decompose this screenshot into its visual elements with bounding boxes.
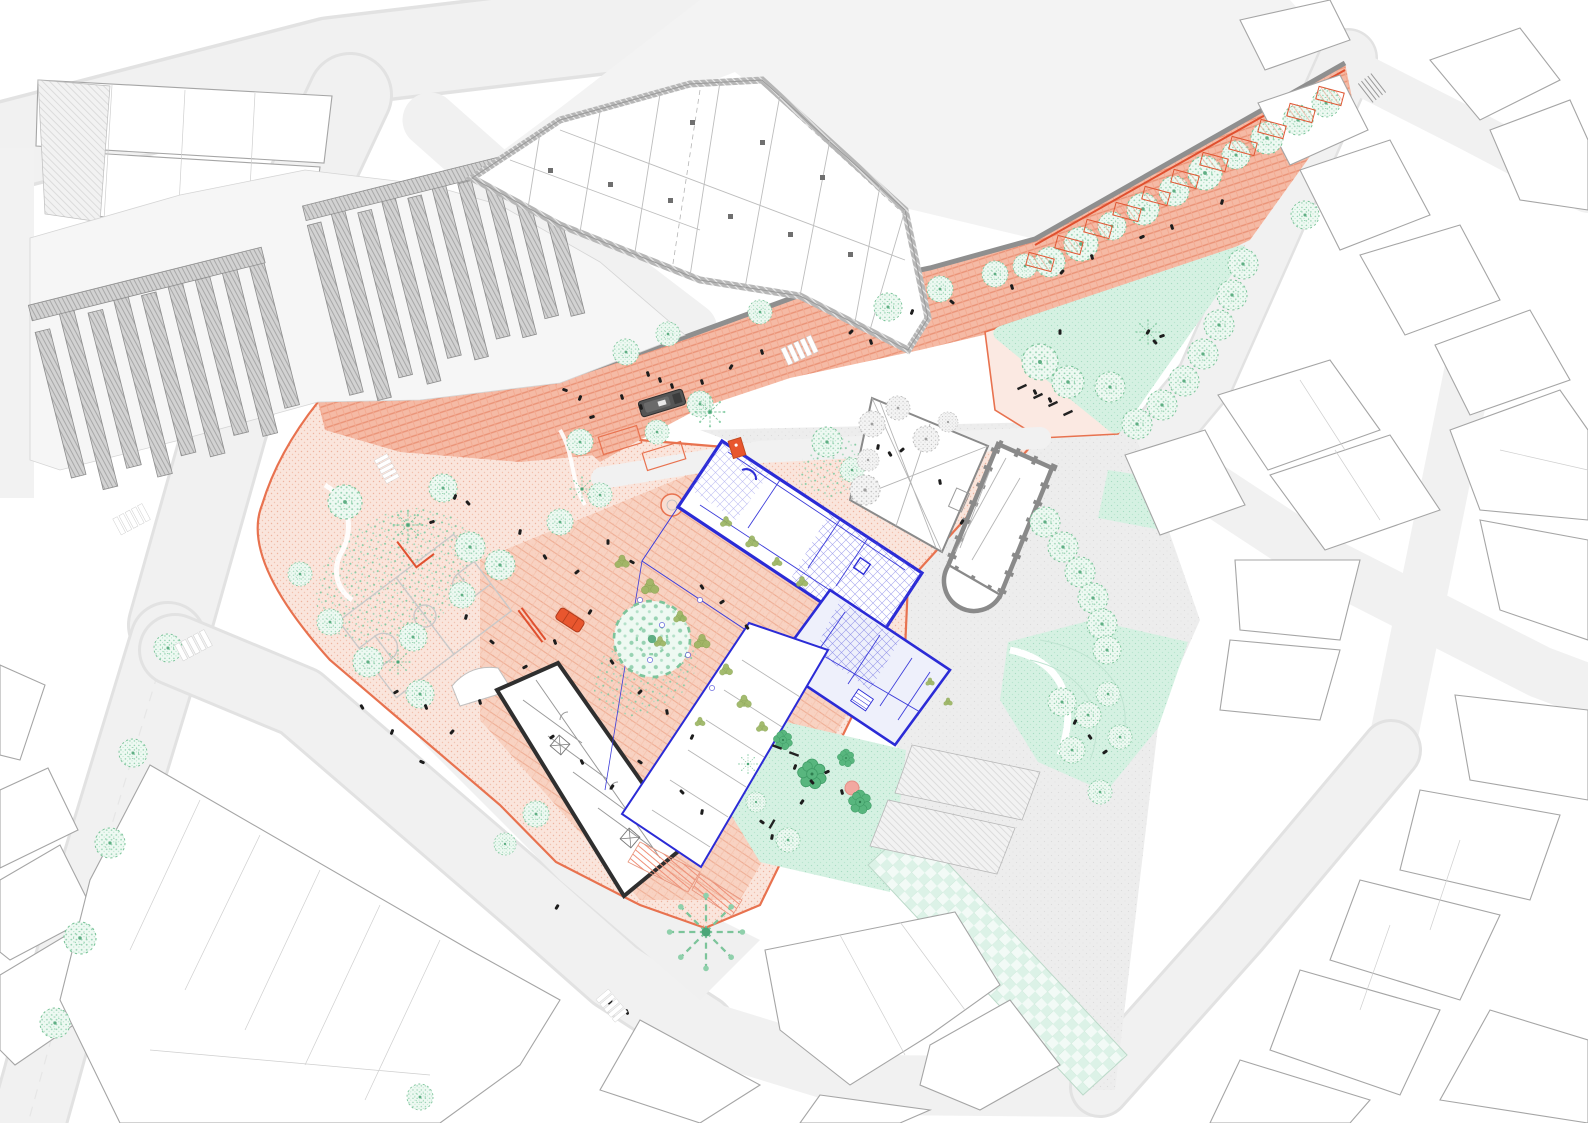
tree-a [455,532,485,562]
tree-a [1217,280,1247,310]
tree-a [1204,310,1234,340]
table [647,657,652,662]
tree-a [64,922,96,954]
tree-a [1078,583,1108,613]
tree-a [406,680,434,708]
tree-a [746,792,766,812]
tree-a [1087,609,1117,639]
tree-a [1147,390,1177,420]
tree-a [1030,507,1060,537]
tree-a [40,1008,70,1038]
tree-a [567,429,593,455]
tree-a [1096,682,1120,706]
table [685,652,690,657]
tree-a [982,261,1008,287]
tree-a [1291,201,1319,229]
tree-a [1022,344,1058,380]
tree-a [1059,737,1085,763]
table [709,685,714,690]
tree-a [485,550,515,580]
tree-d [913,426,939,452]
tree-a [328,485,362,519]
tree-a [1065,557,1095,587]
tree-a [1095,372,1125,402]
tree-a [1169,366,1199,396]
tree-a [1052,366,1084,398]
tree-d [938,412,958,432]
site-plan-drawing [0,0,1588,1123]
table [697,597,702,602]
tree-a [656,322,680,346]
tree-a [523,801,549,827]
tree-a [353,647,383,677]
tree-a [748,300,772,324]
tree-a [407,1084,433,1110]
tree-d [857,449,879,471]
tree-a [1108,725,1132,749]
tree-a [645,420,669,444]
table [659,622,664,627]
tree-a [119,739,147,767]
tree-a [1188,339,1218,369]
tree-a [399,623,427,651]
tree-a [1122,409,1152,439]
tree-a [1048,532,1078,562]
tree-a [812,427,842,457]
tree-a [1075,702,1101,728]
tree-a [1088,780,1112,804]
tree-a [1093,636,1121,664]
tree-a [449,582,475,608]
tree-d [859,411,885,437]
table [637,597,642,602]
tree-a [317,609,343,635]
tree-a [874,293,902,321]
tree-a [288,562,312,586]
tree-a [1228,249,1258,279]
tree-a [588,483,612,507]
tree-a [927,276,953,302]
person [607,539,610,545]
crosswalk [113,504,151,535]
tree-d [886,396,910,420]
site-plan-canvas [0,0,1588,1123]
person [1059,329,1062,335]
tree-d [850,475,880,505]
tree-a [613,339,639,365]
tree-a [1048,688,1076,716]
tree-a [494,833,516,855]
tree-a [95,828,125,858]
tree-a [429,474,457,502]
tree-a [547,509,573,535]
tree-a [776,828,800,852]
